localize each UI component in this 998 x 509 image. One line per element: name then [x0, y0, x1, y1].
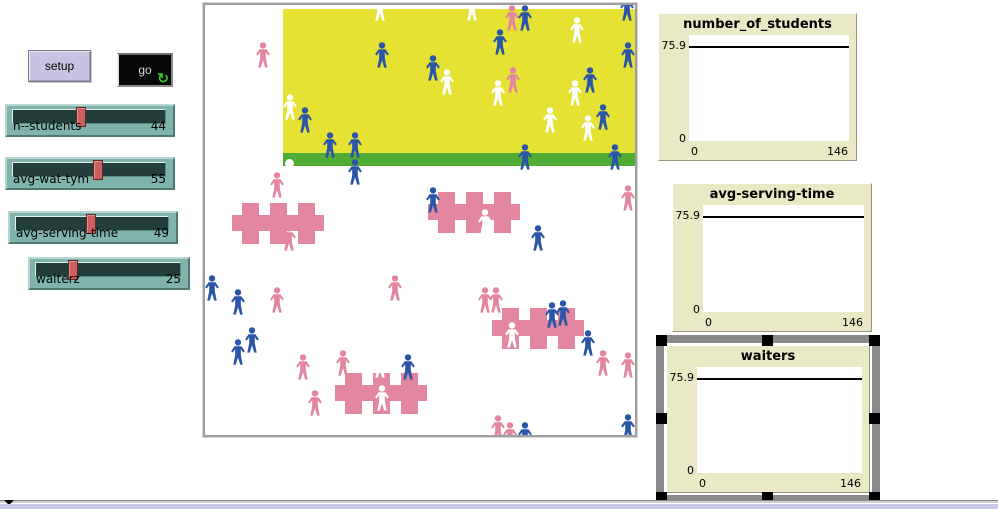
person-agent-pink: [595, 350, 611, 376]
person-agent-blue: [619, 3, 635, 21]
person-agent-pink: [505, 67, 521, 93]
plot-number-of-students: number_of_students 75.9 0 0 146: [658, 13, 857, 161]
plot-pen-line: [697, 378, 862, 380]
slider-value: 44: [151, 119, 166, 133]
resize-handle-top-right[interactable]: [869, 335, 880, 346]
person-agent-white: [372, 352, 388, 378]
person-agent-white: [439, 69, 455, 95]
slider-value: 49: [154, 226, 169, 240]
netlogo-interface: setup go ↻ n--students 44 avg-wat-tym 55…: [0, 0, 998, 509]
window-splitter: [0, 500, 998, 503]
x-axis-max: 146: [842, 316, 863, 329]
x-axis-min: 0: [705, 316, 712, 329]
person-agent-blue: [244, 327, 260, 353]
slider-label: avg-wat-tym: [13, 172, 89, 186]
person-agent-pink: [335, 350, 351, 376]
person-agent-blue: [297, 107, 313, 133]
person-agent-blue: [517, 144, 533, 170]
person-agent-white: [374, 385, 390, 411]
plot-area: [703, 205, 864, 312]
person-agent-blue: [580, 330, 596, 356]
person-agent-blue: [230, 289, 246, 315]
resize-handle-top-left[interactable]: [656, 335, 667, 346]
y-axis-max: 75.9: [667, 371, 694, 384]
table-agent: [428, 192, 520, 234]
person-agent-blue: [607, 144, 623, 170]
person-agent-blue: [425, 187, 441, 213]
person-agent-blue: [322, 132, 338, 158]
person-agent-pink: [620, 352, 636, 378]
person-agent-pink: [269, 287, 285, 313]
person-agent-blue: [204, 275, 220, 301]
person-agent-blue: [230, 339, 246, 365]
person-agent-pink: [255, 42, 271, 68]
slider-waiterz[interactable]: waiterz 25: [28, 257, 190, 290]
resize-handle-top-middle[interactable]: [762, 335, 773, 346]
slider-n-students[interactable]: n--students 44: [5, 104, 175, 137]
plot-area: [689, 35, 849, 141]
dot-agent: [285, 159, 294, 168]
y-axis-min: 0: [673, 303, 700, 316]
y-axis-max: 75.9: [673, 209, 700, 222]
selected-widget-frame[interactable]: waiters 75.9 0 0 146: [656, 335, 880, 503]
person-agent-pink: [307, 390, 323, 416]
person-agent-pink: [620, 185, 636, 211]
slider-avg-serving-time[interactable]: avg-serving-time 49: [8, 211, 178, 244]
person-agent-blue: [517, 422, 533, 437]
slider-label: waiterz: [36, 272, 80, 286]
resize-handle-middle-left[interactable]: [656, 413, 667, 424]
person-agent-pink: [502, 422, 518, 437]
person-agent-blue: [400, 354, 416, 380]
x-axis-min: 0: [699, 477, 706, 490]
person-agent-white: [372, 3, 388, 21]
forever-icon: ↻: [157, 71, 169, 85]
plot-area: [697, 367, 862, 473]
person-agent-pink: [387, 275, 403, 301]
person-agent-blue: [374, 42, 390, 68]
person-agent-blue: [517, 5, 533, 31]
person-agent-pink: [269, 172, 285, 198]
slider-label: n--students: [13, 119, 81, 133]
person-agent-blue: [347, 159, 363, 185]
y-axis-min: 0: [667, 464, 694, 477]
person-agent-white: [567, 80, 583, 106]
person-agent-blue: [620, 42, 636, 68]
setup-button[interactable]: setup: [28, 50, 91, 82]
horizontal-scrollbar[interactable]: [0, 504, 998, 509]
x-axis-min: 0: [691, 145, 698, 158]
plot-title: number_of_students: [659, 17, 856, 32]
go-button-label: go: [138, 63, 151, 77]
plot-pen-line: [689, 46, 849, 48]
plot-pen-line: [703, 216, 864, 218]
person-agent-white: [464, 3, 480, 21]
y-axis-max: 75.9: [659, 39, 686, 52]
world-view: [203, 3, 637, 437]
x-axis-max: 146: [827, 145, 848, 158]
table-agent: [232, 203, 324, 245]
person-agent-white: [282, 94, 298, 120]
plot-waiters: waiters 75.9 0 0 146: [666, 345, 870, 493]
person-agent-blue: [582, 67, 598, 93]
person-agent-blue: [595, 104, 611, 130]
person-agent-white: [569, 17, 585, 43]
person-agent-white: [580, 115, 596, 141]
resize-handle-middle-right[interactable]: [869, 413, 880, 424]
slider-value: 25: [166, 272, 181, 286]
y-axis-min: 0: [659, 132, 686, 145]
plot-title: waiters: [667, 349, 869, 364]
plot-title: avg-serving-time: [673, 187, 871, 202]
person-agent-white: [490, 80, 506, 106]
person-agent-white: [542, 107, 558, 133]
person-agent-blue: [492, 29, 508, 55]
plot-avg-serving-time: avg-serving-time 75.9 0 0 146: [672, 183, 872, 332]
person-agent-white: [504, 322, 520, 348]
slider-label: avg-serving-time: [16, 226, 118, 240]
person-agent-pink: [295, 354, 311, 380]
slider-value: 55: [151, 172, 166, 186]
person-agent-white: [477, 209, 493, 235]
person-agent-blue: [620, 414, 636, 437]
x-axis-max: 146: [840, 477, 861, 490]
go-button[interactable]: go ↻: [117, 53, 173, 87]
slider-avg-wat-tym[interactable]: avg-wat-tym 55: [5, 157, 175, 190]
person-agent-blue: [555, 300, 571, 326]
person-agent-pink: [488, 287, 504, 313]
person-agent-pink: [281, 225, 297, 251]
person-agent-blue: [347, 132, 363, 158]
person-agent-blue: [530, 225, 546, 251]
